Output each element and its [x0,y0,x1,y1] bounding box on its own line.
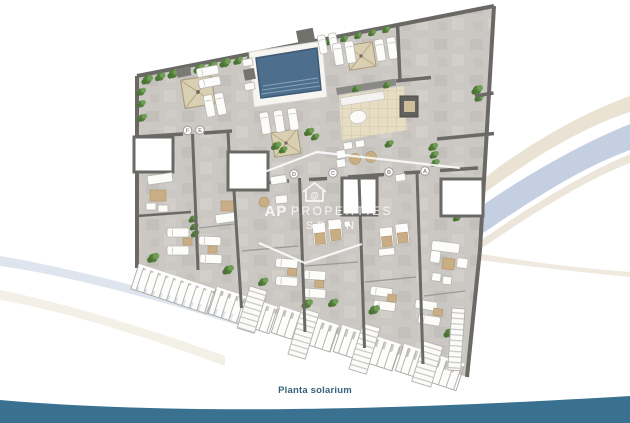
plan-caption: Planta solarium [0,385,630,396]
solarium-floorplan-svg: F E D C B A [0,0,630,423]
unit-label-f: F [183,126,192,135]
svg-text:F: F [186,129,190,135]
sun-lounger [303,270,326,281]
listing-plan-image: F E D C B A [0,0,630,423]
svg-text:D: D [292,172,296,178]
svg-text:E: E [198,128,202,134]
unit-label-e: E [196,126,205,135]
skylight [441,179,483,216]
unit-label-d: D [290,170,299,179]
watermark-brand: AP [265,203,288,220]
sun-lounger [275,276,298,287]
watermark-at-glyph: @ [310,191,319,201]
sun-lounger [167,228,189,237]
swimming-pool [249,41,327,107]
skylight [228,152,268,190]
sun-lounger [167,246,189,255]
right-swoosh-decoration [470,96,630,277]
unit-label-a: A [421,167,430,176]
watermark-line1: PROPERTIES [291,204,393,218]
bottom-wave-decoration [0,396,630,423]
swoosh-faint-lower [470,252,630,277]
svg-text:A: A [423,169,427,175]
sun-lounger [200,254,222,264]
unit-label-b: B [385,168,394,177]
svg-text:B: B [387,170,391,176]
sun-lounger [303,288,326,299]
watermark-line2: SPAIN [306,220,358,232]
sun-lounger [199,236,221,246]
skylight [134,137,173,172]
svg-text:C: C [331,171,335,177]
unit-label-c: C [329,169,338,178]
